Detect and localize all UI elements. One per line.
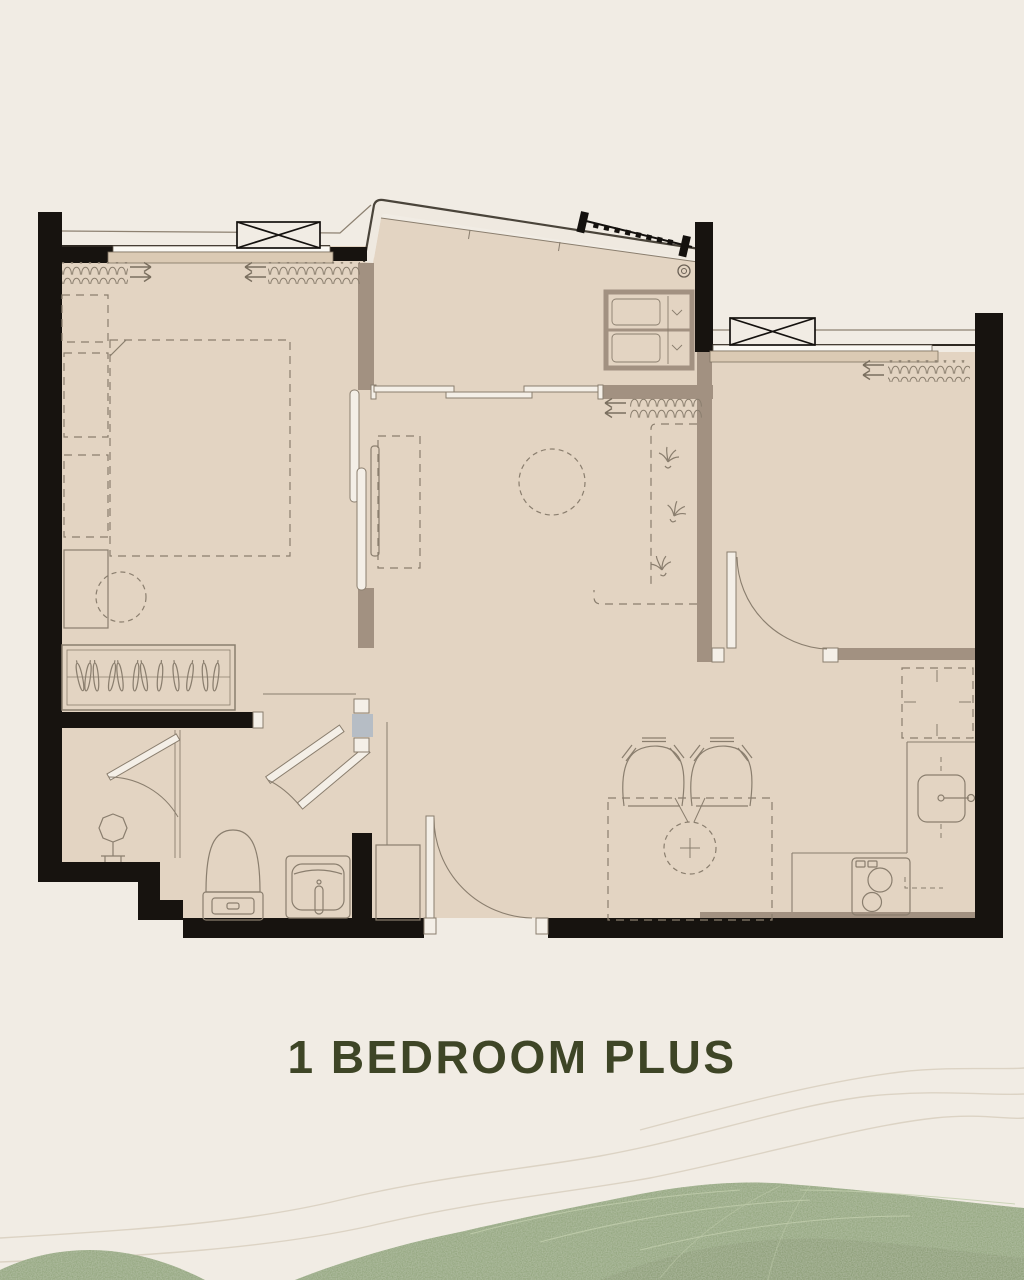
floor-kitchen-dining (716, 648, 975, 918)
floor-plan (0, 0, 1024, 1280)
hill-left (0, 1250, 205, 1280)
floor-living (374, 386, 716, 918)
floor-right-room (712, 352, 975, 660)
plan-title: 1 BEDROOM PLUS (0, 1030, 1024, 1084)
unit-floor (62, 218, 975, 920)
right-room-window (713, 345, 932, 351)
window-symbol-icon (730, 318, 815, 345)
entry-column (352, 714, 373, 737)
page: 1 BEDROOM PLUS (0, 0, 1024, 1280)
window-symbol-icon (237, 222, 320, 248)
floor-bedroom-bath (62, 246, 374, 920)
decorative-hills (0, 1183, 1024, 1280)
